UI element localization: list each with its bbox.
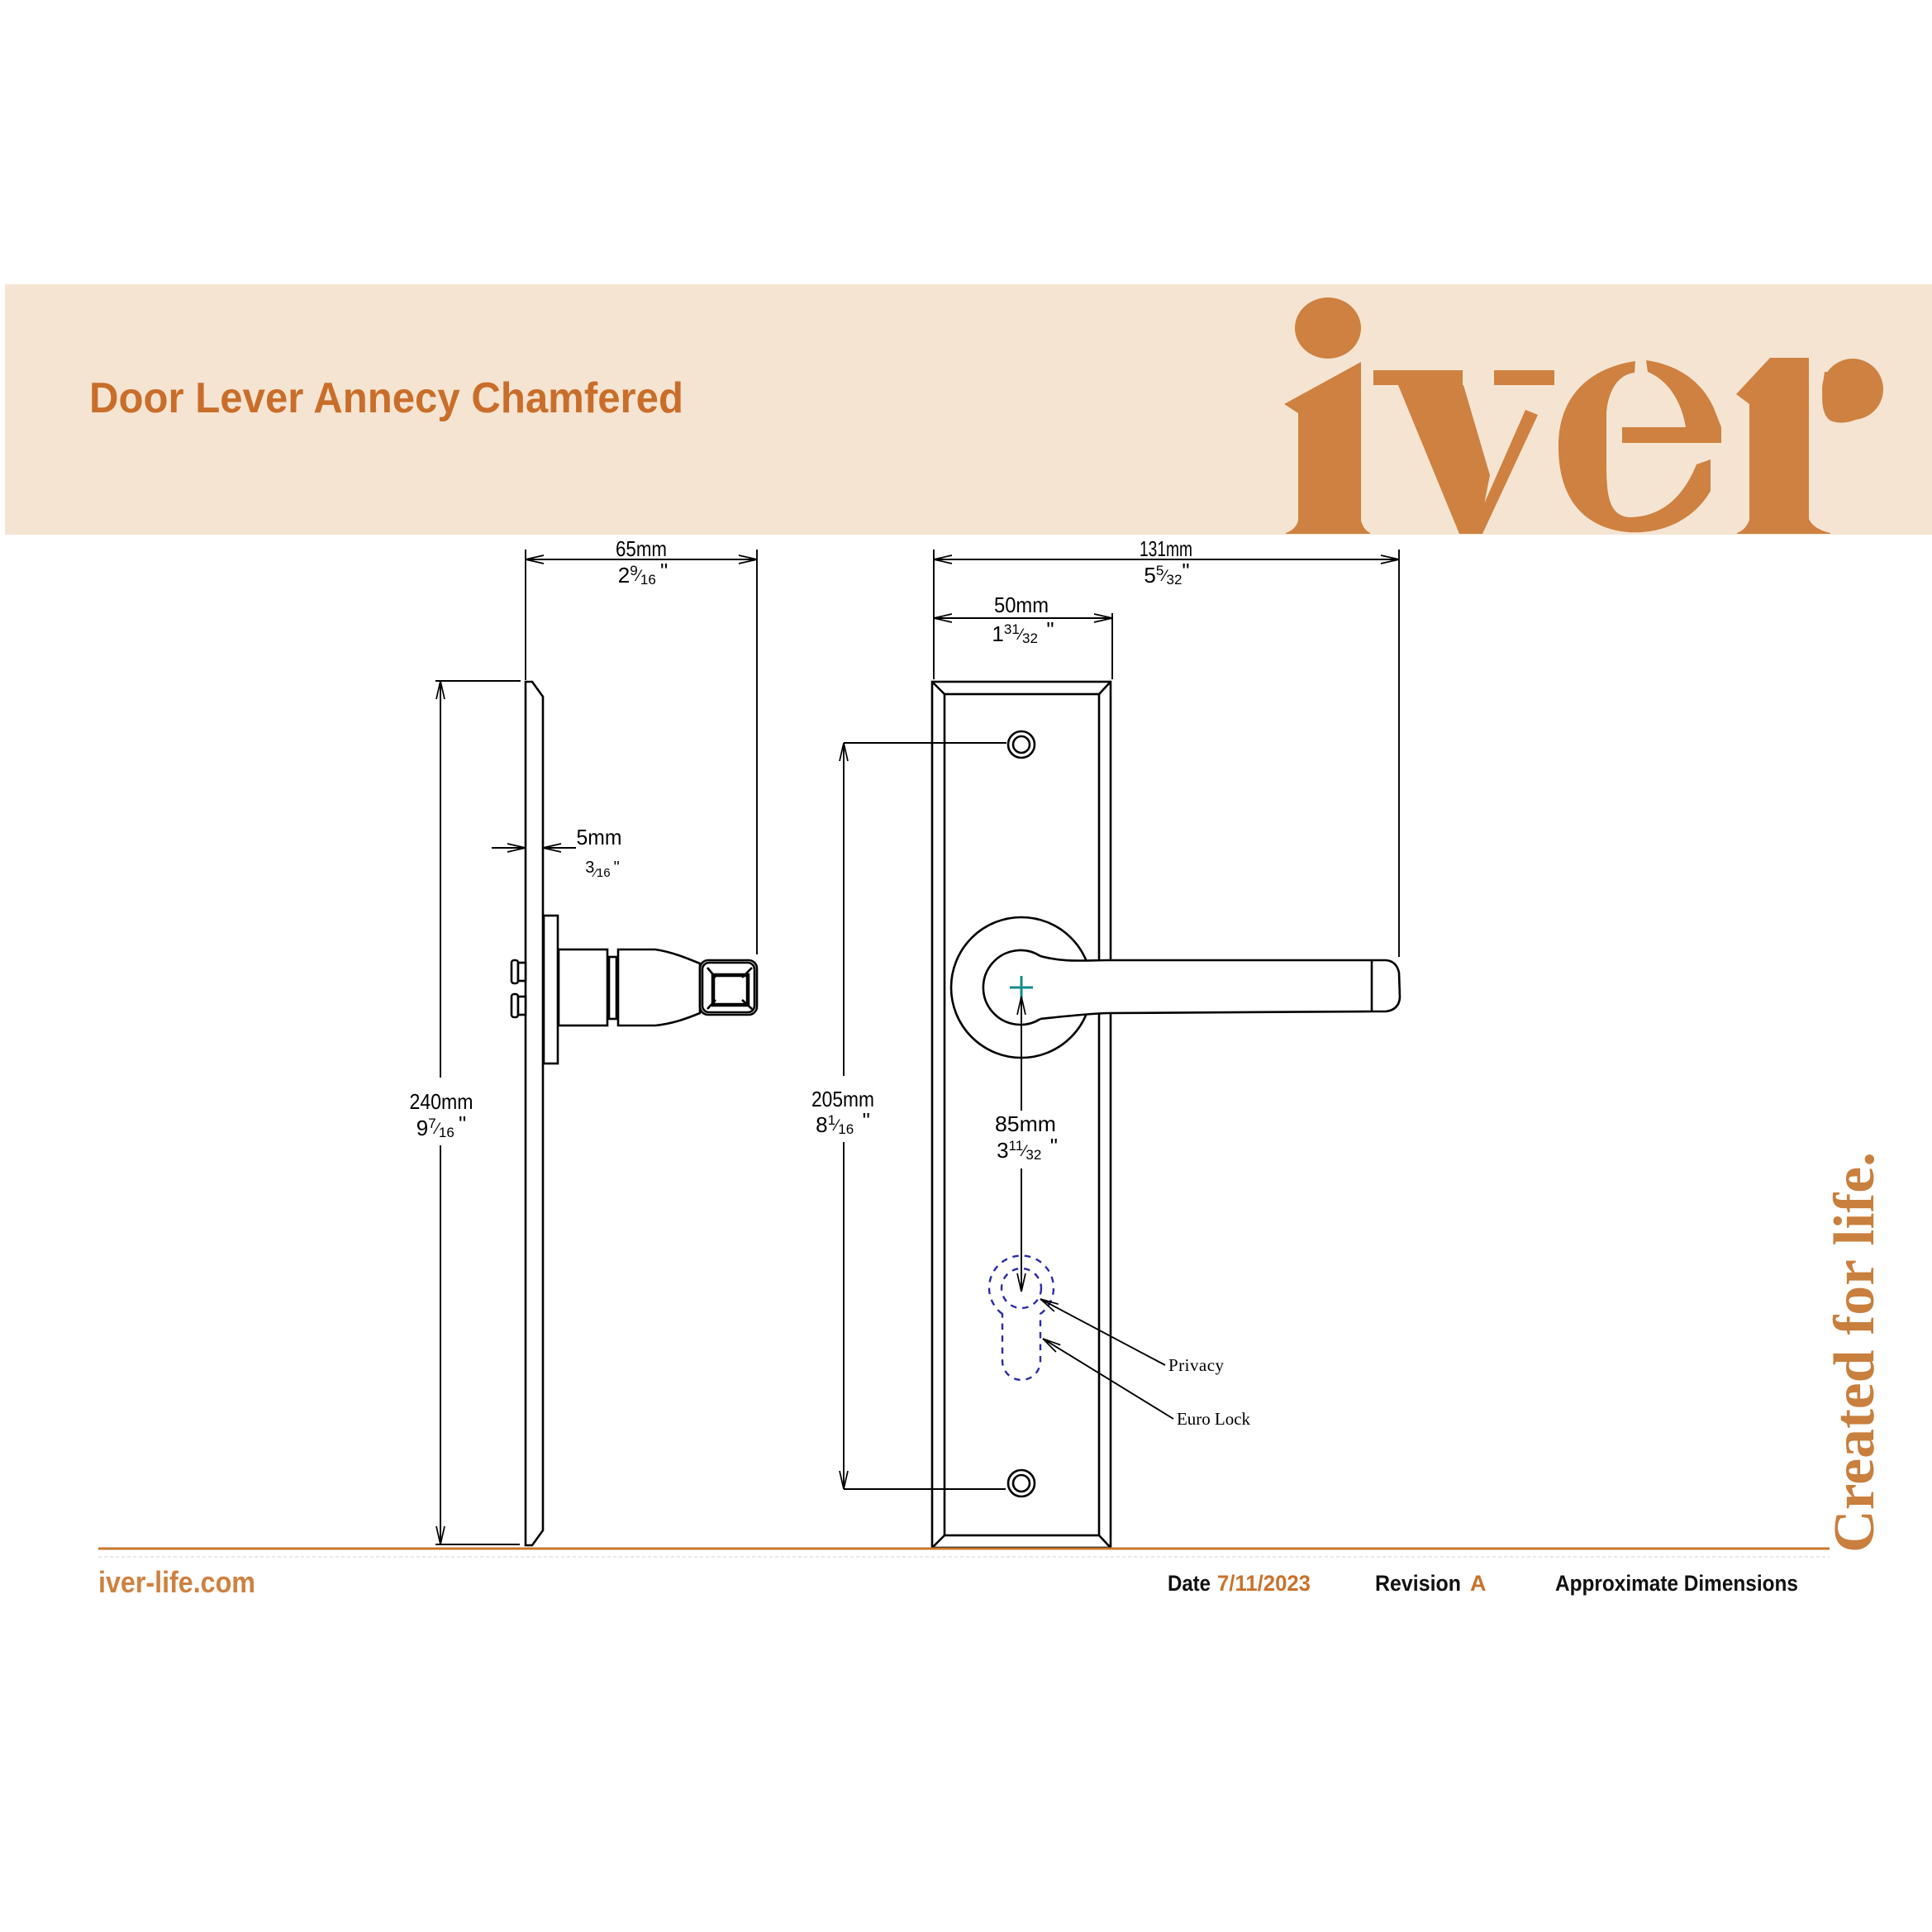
svg-text:Revision: Revision [1375,1571,1461,1596]
svg-text:240mm: 240mm [410,1089,473,1114]
svg-text:A: A [1470,1571,1487,1596]
svg-text:7/11/2023: 7/11/2023 [1217,1571,1311,1596]
svg-text:5mm: 5mm [577,825,622,849]
svg-text:65mm: 65mm [616,536,667,561]
svg-text:iver-life.com: iver-life.com [98,1565,255,1599]
svg-text:Euro Lock: Euro Lock [1177,1409,1251,1429]
svg-text:Approximate Dimensions: Approximate Dimensions [1555,1571,1798,1596]
svg-text:Created for life.: Created for life. [1823,1152,1887,1553]
svg-text:Privacy: Privacy [1168,1355,1225,1375]
svg-text:85mm: 85mm [995,1111,1056,1136]
svg-text:Date: Date [1168,1571,1211,1596]
svg-text:131mm: 131mm [1140,536,1192,561]
svg-text:Door Lever Annecy Chamfered: Door Lever Annecy Chamfered [89,374,683,422]
svg-text:50mm: 50mm [994,592,1049,617]
